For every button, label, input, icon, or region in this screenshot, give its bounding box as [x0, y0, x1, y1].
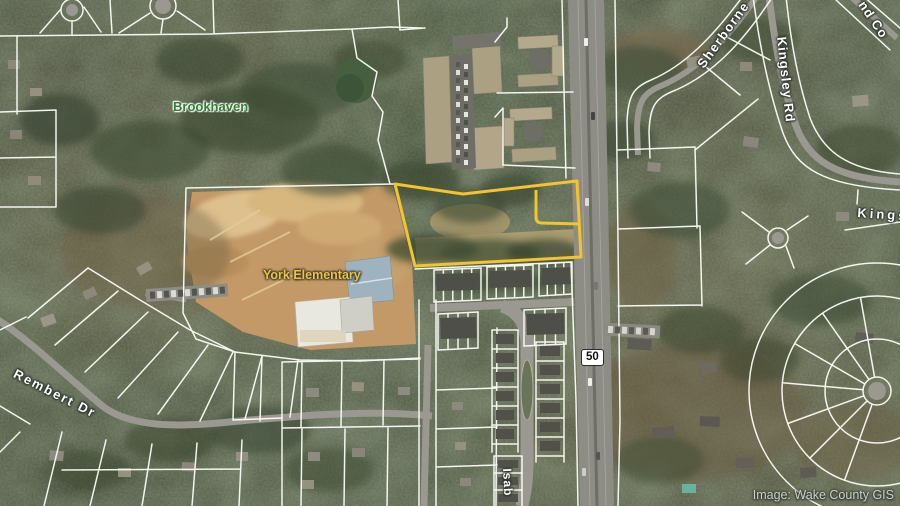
street-label-isab-partial: Isab: [500, 468, 515, 497]
school-label: York Elementary: [263, 268, 361, 282]
route-50-shield: 50: [581, 349, 604, 366]
map-attribution: Image: Wake County GIS: [753, 488, 894, 502]
neighborhood-label: Brookhaven: [173, 99, 248, 114]
pond: [335, 57, 377, 103]
map-canvas[interactable]: Brookhaven York Elementary Rembert Dr Sh…: [0, 0, 900, 506]
aerial-imagery-layer: [0, 0, 900, 506]
